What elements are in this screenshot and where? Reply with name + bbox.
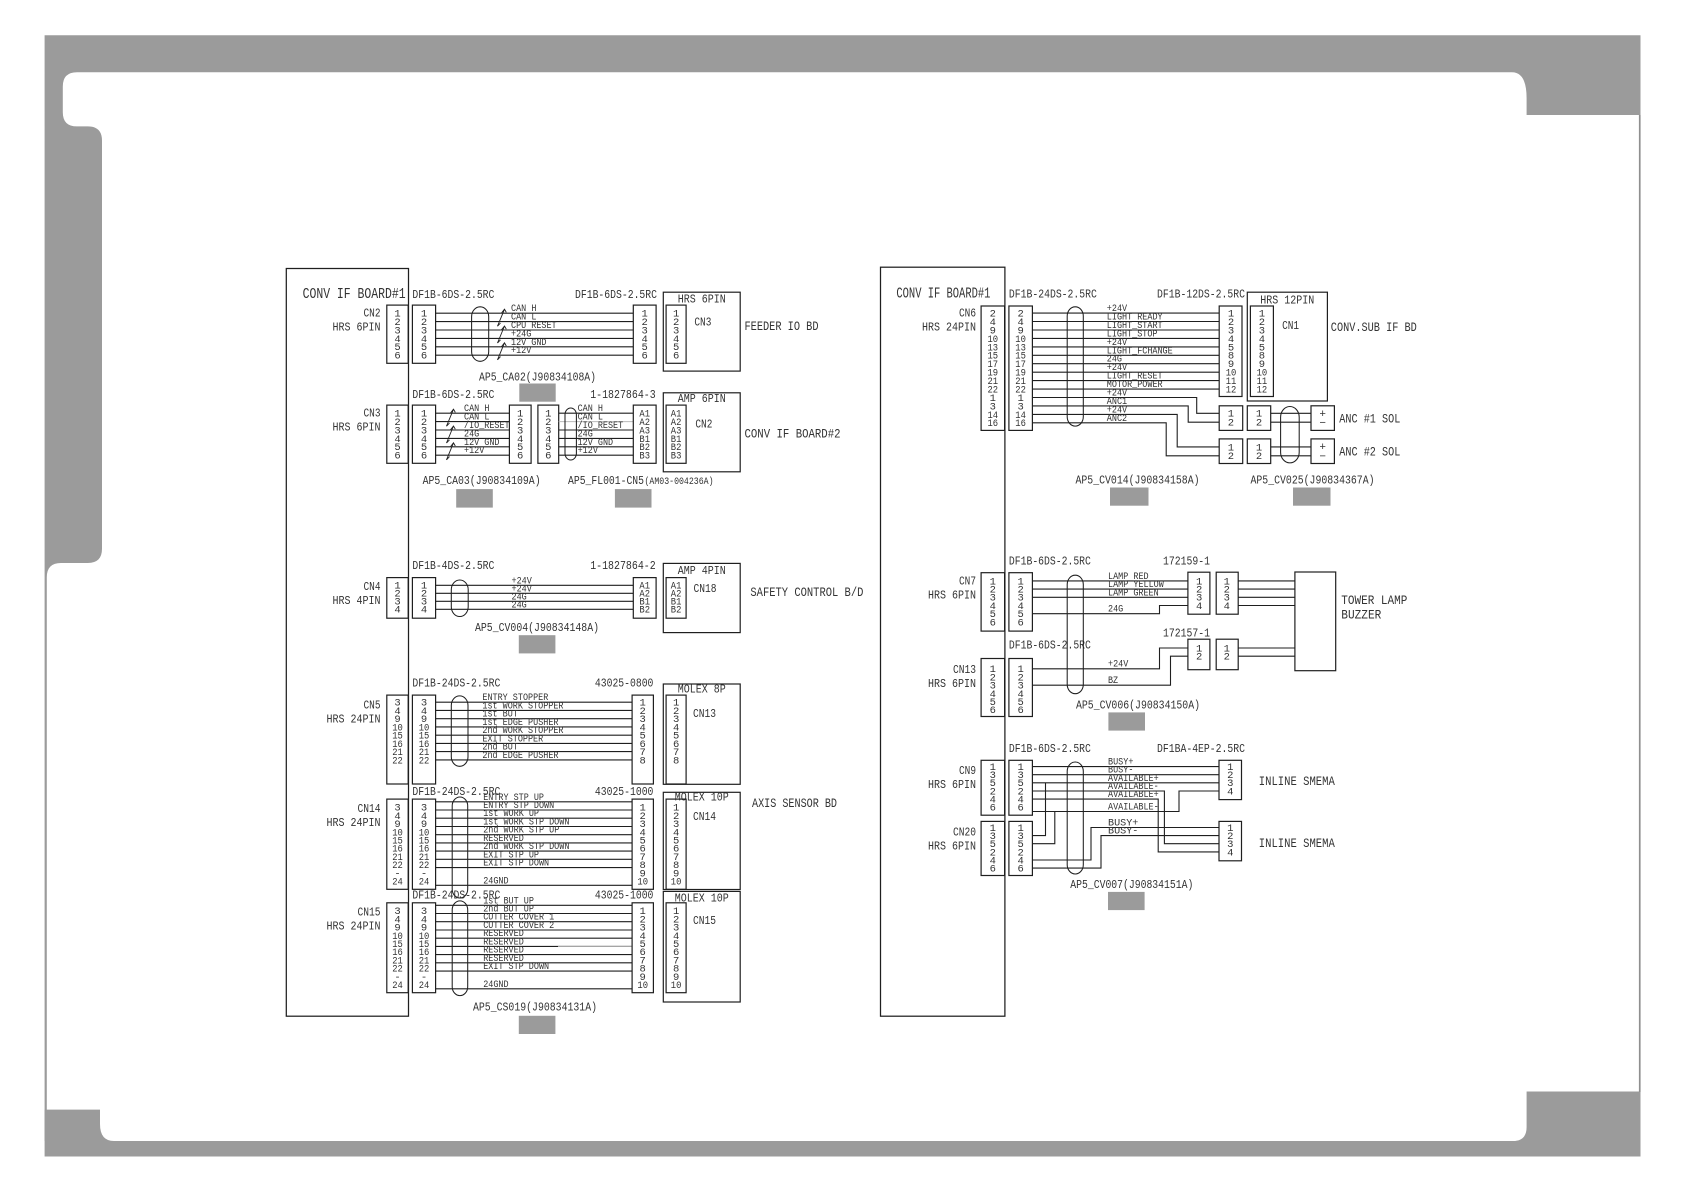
- svg-text:−: −: [1319, 418, 1326, 430]
- svg-text:HRS 24PIN: HRS 24PIN: [327, 920, 381, 934]
- svg-text:INLINE SMEMA: INLINE SMEMA: [1259, 836, 1335, 851]
- svg-text:4: 4: [1227, 847, 1233, 859]
- svg-text:HRS 24PIN: HRS 24PIN: [327, 713, 381, 727]
- svg-text:6: 6: [990, 617, 996, 629]
- svg-text:6: 6: [1017, 705, 1023, 717]
- svg-text:CN15: CN15: [358, 906, 381, 920]
- svg-text:B2: B2: [671, 605, 682, 617]
- svg-text:6: 6: [545, 451, 551, 463]
- svg-text:4: 4: [1196, 601, 1202, 613]
- svg-text:HRS 6PIN: HRS 6PIN: [678, 292, 726, 306]
- svg-text:DF1B-4DS-2.5RC: DF1B-4DS-2.5RC: [412, 559, 494, 573]
- svg-text:CONV IF BOARD#2: CONV IF BOARD#2: [745, 427, 841, 442]
- svg-text:MOLEX 10P: MOLEX 10P: [675, 790, 729, 804]
- svg-text:LAMP GREEN: LAMP GREEN: [1108, 587, 1159, 599]
- svg-text:10: 10: [637, 877, 648, 889]
- svg-text:ANC #2 SOL: ANC #2 SOL: [1339, 445, 1400, 460]
- svg-text:CN7: CN7: [959, 574, 976, 588]
- svg-text:6: 6: [642, 351, 648, 363]
- svg-text:6: 6: [1017, 803, 1023, 815]
- svg-text:CN9: CN9: [959, 764, 976, 778]
- svg-text:2: 2: [1196, 652, 1202, 664]
- svg-text:43025-1000: 43025-1000: [595, 785, 654, 799]
- svg-text:1-1827864-3: 1-1827864-3: [590, 388, 656, 402]
- svg-text:HRS 4PIN: HRS 4PIN: [333, 594, 381, 608]
- svg-text:AXIS SENSOR BD: AXIS SENSOR BD: [752, 796, 837, 811]
- svg-text:DF1B-6DS-2.5RC: DF1B-6DS-2.5RC: [575, 288, 657, 302]
- svg-text:AP5_CA03(J90834109A): AP5_CA03(J90834109A): [423, 474, 541, 488]
- svg-text:HRS 24PIN: HRS 24PIN: [327, 816, 381, 830]
- svg-text:24GND: 24GND: [483, 979, 508, 991]
- svg-text:2: 2: [1256, 451, 1262, 463]
- svg-text:10: 10: [671, 980, 682, 992]
- svg-text:CN2: CN2: [364, 306, 381, 320]
- svg-text:6: 6: [990, 705, 996, 717]
- svg-text:6: 6: [1017, 617, 1023, 629]
- svg-text:4: 4: [421, 605, 427, 617]
- svg-text:DF1B-6DS-2.5RC: DF1B-6DS-2.5RC: [412, 288, 494, 302]
- svg-text:2nd EDGE PUSHER: 2nd EDGE PUSHER: [482, 750, 558, 762]
- svg-text:2: 2: [1228, 451, 1234, 463]
- svg-text:FEEDER IO BD: FEEDER IO BD: [745, 319, 819, 334]
- svg-text:DF1BA-4EP-2.5RC: DF1BA-4EP-2.5RC: [1157, 742, 1245, 756]
- svg-text:DF1B-24DS-2.5RC: DF1B-24DS-2.5RC: [1009, 288, 1097, 302]
- svg-text:CN2: CN2: [695, 417, 712, 431]
- svg-text:ANC2: ANC2: [1107, 413, 1127, 425]
- svg-text:+24V: +24V: [1108, 659, 1129, 671]
- svg-text:EXIT STP DOWN: EXIT STP DOWN: [483, 858, 549, 870]
- svg-text:TOWER LAMP: TOWER LAMP: [1341, 593, 1407, 608]
- svg-text:(AM03-004236A): (AM03-004236A): [645, 476, 714, 488]
- svg-text:AP5_CV004(J90834148A): AP5_CV004(J90834148A): [475, 621, 599, 635]
- svg-text:HRS 24PIN: HRS 24PIN: [922, 321, 976, 335]
- svg-text:8: 8: [640, 755, 646, 767]
- svg-text:AP5_CA02(J90834108A): AP5_CA02(J90834108A): [479, 371, 596, 385]
- svg-text:6: 6: [517, 451, 523, 463]
- svg-text:−: −: [1319, 451, 1326, 463]
- svg-text:CN14: CN14: [358, 802, 381, 816]
- svg-text:CN5: CN5: [364, 699, 381, 713]
- svg-text:6: 6: [421, 351, 427, 363]
- svg-text:DF1B-24DS-2.5RC: DF1B-24DS-2.5RC: [412, 677, 500, 691]
- svg-text:DF1B-6DS-2.5RC: DF1B-6DS-2.5RC: [1009, 742, 1091, 756]
- svg-text:2: 2: [1224, 652, 1230, 664]
- svg-text:B2: B2: [639, 605, 650, 617]
- svg-text:INLINE SMEMA: INLINE SMEMA: [1259, 774, 1335, 789]
- svg-text:6: 6: [394, 451, 400, 463]
- svg-text:DF1B-12DS-2.5RC: DF1B-12DS-2.5RC: [1157, 288, 1245, 302]
- svg-text:12: 12: [1257, 385, 1268, 397]
- svg-text:CN13: CN13: [953, 663, 976, 677]
- svg-text:2: 2: [1256, 418, 1262, 430]
- svg-text:CN14: CN14: [693, 810, 716, 824]
- svg-text:B3: B3: [671, 451, 682, 463]
- svg-text:AVAILABLE-: AVAILABLE-: [1108, 802, 1159, 814]
- svg-text:AP5_CV007(J90834151A): AP5_CV007(J90834151A): [1070, 878, 1193, 892]
- svg-text:CONV.SUB IF BD: CONV.SUB IF BD: [1331, 320, 1417, 335]
- svg-text:+12V: +12V: [578, 445, 599, 457]
- svg-text:EXIT STP DOWN: EXIT STP DOWN: [483, 961, 549, 973]
- svg-text:AMP 6PIN: AMP 6PIN: [678, 392, 726, 406]
- svg-text:AP5_CV025(J90834367A): AP5_CV025(J90834367A): [1251, 473, 1375, 487]
- svg-text:12: 12: [1226, 385, 1237, 397]
- svg-text:43025-0800: 43025-0800: [595, 677, 654, 691]
- svg-text:24GND: 24GND: [483, 875, 508, 887]
- svg-text:172157-1: 172157-1: [1163, 626, 1210, 640]
- svg-text:BUSY-: BUSY-: [1108, 826, 1138, 838]
- svg-text:CN3: CN3: [694, 315, 711, 329]
- svg-text:AMP 4PIN: AMP 4PIN: [678, 564, 726, 578]
- svg-text:SAFETY CONTROL B/D: SAFETY CONTROL B/D: [750, 585, 863, 600]
- svg-text:8: 8: [673, 755, 679, 767]
- svg-text:CN18: CN18: [694, 582, 717, 596]
- svg-text:43025-1000: 43025-1000: [595, 888, 654, 902]
- svg-text:CN20: CN20: [953, 825, 976, 839]
- svg-text:+12V: +12V: [511, 345, 532, 357]
- svg-text:6: 6: [990, 864, 996, 876]
- svg-text:CN3: CN3: [364, 406, 381, 420]
- svg-text:6: 6: [394, 351, 400, 363]
- svg-text:6: 6: [421, 451, 427, 463]
- svg-text:DF1B-6DS-2.5RC: DF1B-6DS-2.5RC: [1009, 555, 1091, 569]
- svg-text:24: 24: [392, 877, 403, 889]
- svg-text:AP5_CS019(J90834131A): AP5_CS019(J90834131A): [473, 1001, 597, 1015]
- svg-text:AP5_CV006(J90834150A): AP5_CV006(J90834150A): [1076, 699, 1200, 713]
- svg-text:HRS 6PIN: HRS 6PIN: [928, 839, 976, 853]
- svg-text:16: 16: [988, 418, 999, 430]
- svg-text:4: 4: [394, 605, 400, 617]
- svg-text:2: 2: [1228, 418, 1234, 430]
- svg-text:24G: 24G: [1108, 604, 1123, 616]
- svg-text:10: 10: [671, 877, 682, 889]
- svg-text:HRS 6PIN: HRS 6PIN: [333, 320, 381, 334]
- svg-text:+12V: +12V: [464, 445, 485, 457]
- svg-text:22: 22: [419, 755, 430, 767]
- svg-text:HRS 6PIN: HRS 6PIN: [928, 588, 976, 602]
- svg-text:24: 24: [419, 877, 430, 889]
- svg-text:6: 6: [673, 351, 679, 363]
- svg-text:CONV IF BOARD#1: CONV IF BOARD#1: [896, 286, 990, 302]
- svg-text:CN13: CN13: [693, 707, 716, 721]
- svg-text:CONV IF BOARD#1: CONV IF BOARD#1: [303, 287, 406, 303]
- svg-text:MOLEX 8P: MOLEX 8P: [678, 683, 726, 697]
- svg-text:HRS 6PIN: HRS 6PIN: [928, 677, 976, 691]
- svg-text:B3: B3: [639, 451, 650, 463]
- svg-text:4: 4: [1224, 601, 1230, 613]
- svg-text:DF1B-6DS-2.5RC: DF1B-6DS-2.5RC: [412, 388, 494, 402]
- svg-text:4: 4: [1227, 786, 1233, 798]
- svg-text:CN1: CN1: [1282, 319, 1299, 333]
- svg-text:BUZZER: BUZZER: [1341, 607, 1381, 622]
- svg-text:10: 10: [637, 980, 648, 992]
- svg-text:CN4: CN4: [364, 580, 381, 594]
- svg-text:AP5_FL001-CN5: AP5_FL001-CN5: [568, 474, 644, 488]
- svg-text:24: 24: [392, 980, 403, 992]
- svg-text:16: 16: [1015, 418, 1026, 430]
- svg-text:DF1B-6DS-2.5RC: DF1B-6DS-2.5RC: [1009, 639, 1091, 653]
- svg-text:HRS 6PIN: HRS 6PIN: [333, 420, 381, 434]
- svg-text:ANC #1 SOL: ANC #1 SOL: [1339, 411, 1400, 426]
- svg-text:24G: 24G: [512, 599, 527, 611]
- svg-text:AVAILABLE+: AVAILABLE+: [1108, 789, 1159, 801]
- svg-text:CN15: CN15: [693, 914, 716, 928]
- svg-text:1-1827864-2: 1-1827864-2: [590, 559, 656, 573]
- svg-text:AP5_CV014(J90834158A): AP5_CV014(J90834158A): [1076, 473, 1200, 487]
- svg-text:6: 6: [1017, 864, 1023, 876]
- svg-text:HRS 12PIN: HRS 12PIN: [1260, 293, 1314, 307]
- svg-text:172159-1: 172159-1: [1163, 555, 1210, 569]
- svg-text:HRS 6PIN: HRS 6PIN: [928, 778, 976, 792]
- svg-text:CN6: CN6: [959, 307, 976, 321]
- svg-text:24: 24: [419, 980, 430, 992]
- svg-text:22: 22: [392, 755, 403, 767]
- svg-text:6: 6: [990, 803, 996, 815]
- svg-text:BZ: BZ: [1108, 675, 1118, 687]
